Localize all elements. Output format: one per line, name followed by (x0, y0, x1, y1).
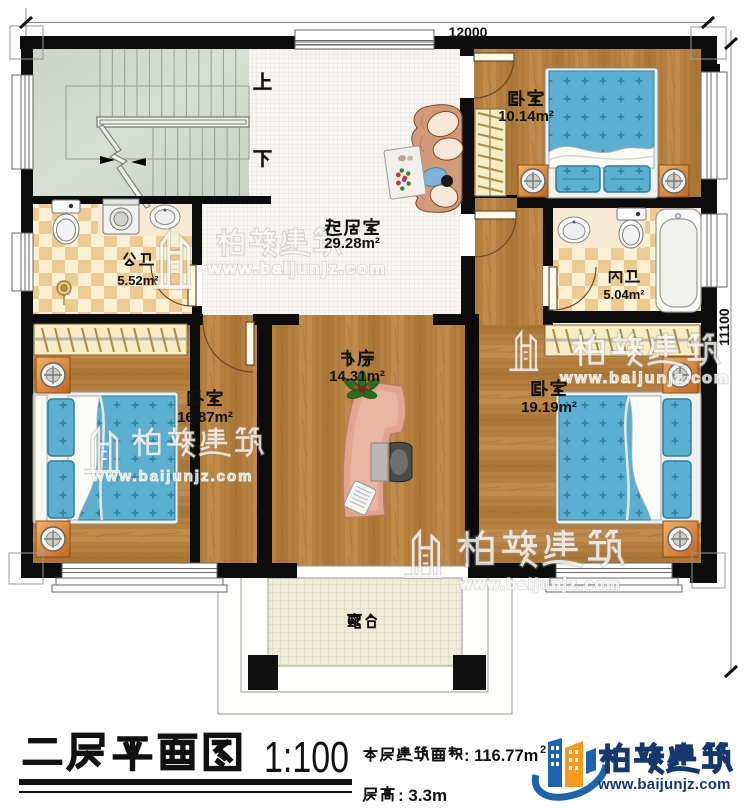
svg-text:16.87m²: 16.87m² (177, 409, 233, 426)
svg-text:11100: 11100 (716, 308, 732, 346)
svg-text:www.baijunjz.com: www.baijunjz.com (207, 259, 387, 278)
svg-text:2: 2 (540, 744, 546, 756)
svg-text:5.04m²: 5.04m² (603, 287, 645, 302)
svg-text:www.baijunjz.com: www.baijunjz.com (91, 468, 253, 485)
svg-text:: 3.3m: : 3.3m (398, 786, 447, 803)
svg-text:1:100: 1:100 (264, 733, 349, 782)
svg-text:5.52m²: 5.52m² (117, 273, 159, 288)
svg-text:www.baijunjz.com: www.baijunjz.com (597, 776, 731, 793)
svg-text:12000: 12000 (449, 24, 488, 40)
svg-text:10.14m²: 10.14m² (498, 108, 554, 125)
svg-text:14.31m²: 14.31m² (329, 368, 385, 385)
svg-text:29.28m²: 29.28m² (324, 235, 380, 252)
svg-text:www.baijunjz.com: www.baijunjz.com (559, 370, 730, 387)
svg-text:: 116.77m: : 116.77m (464, 747, 538, 765)
svg-text:www.baijunjz.com: www.baijunjz.com (459, 576, 621, 593)
svg-text:19.19m²: 19.19m² (521, 399, 577, 416)
